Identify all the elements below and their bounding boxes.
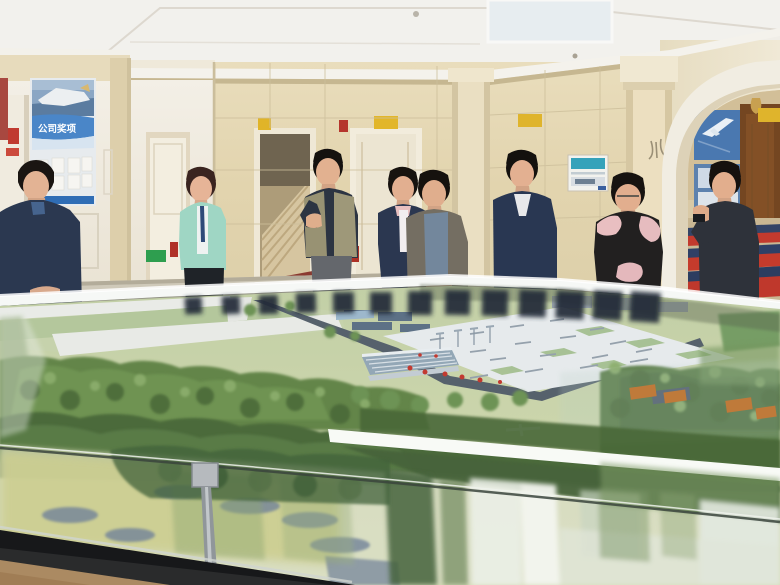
svg-text:公司奖项: 公司奖项 xyxy=(38,123,77,135)
